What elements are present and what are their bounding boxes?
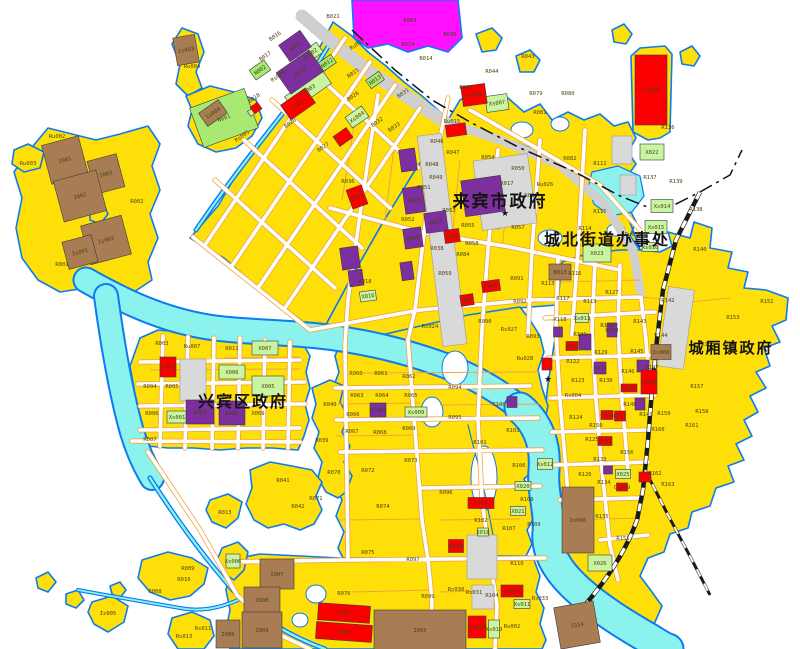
parcel-label-R066: R066 — [346, 412, 359, 418]
parcel-label-X025: X025 — [616, 472, 629, 478]
parcel-unlabeled — [399, 148, 418, 172]
parcel-label-R163: R163 — [661, 482, 674, 488]
parcel-label-R071: R071 — [309, 496, 322, 502]
parcel-label-Xs010: Xs010 — [486, 627, 503, 633]
parcel-label-R038: R038 — [430, 246, 443, 252]
pond — [551, 117, 569, 131]
parcel-label-R139: R139 — [669, 179, 682, 185]
parcel-label-Xs012: Xs012 — [537, 462, 554, 468]
parcel-label-Ru028: Ru028 — [517, 356, 534, 362]
parcel-label-R102: R102 — [474, 518, 487, 524]
parcel-label-R150: R150 — [589, 423, 602, 429]
parcel-label-R009: R009 — [181, 566, 194, 572]
parcel-label-B021: B021 — [326, 14, 339, 20]
parcel-label-R096: R096 — [439, 490, 452, 496]
parcel-label-X018: X018 — [476, 530, 489, 536]
parcel-label-R072: R072 — [361, 468, 374, 474]
parcel-unlabeled — [445, 123, 466, 138]
parcel-label-Xs006: Xs006 — [225, 559, 242, 565]
parcel-label-Cs001: Cs001 — [160, 365, 177, 371]
parcel-label-R049: R049 — [429, 175, 442, 181]
parcel-label-R101: R101 — [473, 440, 486, 446]
parcel-label-R057: R057 — [511, 225, 524, 231]
parcel-label-X005: X005 — [261, 384, 274, 390]
parcel-label-Xs009: Xs009 — [408, 410, 425, 416]
parcel-label-R109: R109 — [527, 522, 540, 528]
parcel-label-R081: R081 — [533, 110, 546, 116]
parcel-label-Xs013: Xs013 — [574, 316, 591, 322]
pond — [306, 585, 326, 603]
pond — [442, 351, 468, 385]
parcel-label-R008: R008 — [148, 589, 161, 595]
parcel-label-R114: R114 — [578, 226, 592, 232]
parcel-label-C004: C004 — [337, 629, 351, 636]
parcel-label-R117: R117 — [556, 296, 569, 302]
islet — [476, 28, 502, 52]
parcel-label-Xs015: Xs015 — [648, 225, 665, 231]
parcel-label-R134: R134 — [597, 480, 611, 486]
parcel-label-R062: R062 — [402, 374, 415, 380]
parcel-label-R065: R065 — [404, 393, 417, 399]
parcel-label-I008: I008 — [255, 598, 268, 604]
parcel-label-R160: R160 — [651, 427, 664, 433]
parcel-label-Rs033: Rs033 — [532, 596, 549, 602]
parcel-label-Ru003: Ru003 — [20, 161, 37, 167]
parcel-label-B014: B014 — [419, 56, 433, 62]
parcel-label-X023: X023 — [590, 251, 603, 257]
parcel-label-R075: R075 — [361, 550, 374, 556]
parcel-label-C018: C018 — [642, 380, 655, 386]
parcel-unlabeled — [612, 136, 632, 164]
parcel-label-R005: R005 — [165, 384, 178, 390]
parcel-label-R060: R060 — [349, 371, 362, 377]
parcel-label-R050: R050 — [511, 166, 524, 172]
parcel-label-Es001: Es001 — [370, 408, 387, 414]
parcel-label-R118: R118 — [553, 317, 566, 323]
parcel-label-C013: C013 — [598, 439, 611, 445]
parcel-label-R068: R068 — [373, 430, 386, 436]
parcel-label-R048: R048 — [425, 162, 438, 168]
parcel-label-R153: R153 — [726, 315, 739, 321]
parcel-label-C016: C016 — [622, 386, 635, 392]
parcel-label-R119: R119 — [583, 299, 596, 305]
government-seat-star-icon: ★ — [501, 209, 509, 219]
parcel-label-R110: R110 — [510, 561, 523, 567]
parcel-label-R011: R011 — [225, 346, 238, 352]
parcel-label-R041: R041 — [276, 478, 289, 484]
parcel-label-R133: R133 — [593, 457, 606, 463]
parcel-label-R123: R123 — [571, 378, 584, 384]
parcel-label-Is006: Is006 — [570, 518, 587, 524]
parcel-label-R091: R091 — [510, 276, 523, 282]
parcel-label-R094: R094 — [448, 385, 462, 391]
parcel-label-A002: A002 — [225, 411, 238, 417]
parcel-label-R073: R073 — [404, 458, 417, 464]
parcel-label-R106: R106 — [512, 463, 525, 469]
parcel-label-R104: R104 — [485, 593, 499, 599]
islet — [66, 590, 84, 608]
parcel-label-R151: R151 — [616, 536, 629, 542]
parcel-label-X006: X006 — [225, 370, 238, 376]
parcel-label-Cs008: Cs008 — [643, 88, 660, 94]
parcel-label-R046: R046 — [430, 139, 443, 145]
parcel-label-C009: C009 — [474, 501, 487, 507]
parcel-label-R082: R082 — [563, 156, 576, 162]
parcel-label-C012: C012 — [565, 344, 578, 350]
parcel-label-R144: R144 — [654, 333, 668, 339]
parcel-label-R107: R107 — [502, 526, 515, 532]
parcel-unlabeled — [400, 261, 414, 280]
parcel-label-R095: R095 — [448, 415, 461, 421]
parcel-label-R002: R002 — [130, 199, 143, 205]
parcel-label-R138: R138 — [689, 207, 702, 213]
parcel-label-R054: R054 — [481, 155, 495, 161]
islet — [36, 572, 56, 592]
parcel-label-R079: R079 — [529, 91, 542, 97]
parcel-label-Cs007: Cs007 — [469, 625, 486, 631]
parcel-label-C002: C002 — [337, 610, 351, 617]
parcel-label-R158: R158 — [695, 409, 708, 415]
parcel-label-R013: R013 — [218, 510, 231, 516]
parcel-label-R064: R064 — [375, 393, 389, 399]
parcel-label-R090: R090 — [478, 319, 491, 325]
parcel-label-R042: R042 — [291, 504, 304, 510]
parcel-label-R074: R074 — [376, 504, 390, 510]
parcel-label-R061: R061 — [374, 371, 387, 377]
parcel-label-Ru007: Ru007 — [184, 344, 201, 350]
parcel-unlabeled — [620, 175, 636, 195]
parcel-label-Cs009: Cs009 — [614, 485, 631, 491]
parcel-unlabeled — [604, 466, 613, 474]
parcel-label-B016: B016 — [268, 30, 282, 43]
parcel-unlabeled — [554, 327, 563, 337]
parcel-label-R146: R146 — [621, 369, 634, 375]
parcel-unlabeled — [467, 535, 497, 579]
parcel-label-R097: R097 — [406, 557, 419, 563]
parcel-label-X009: X009 — [251, 411, 264, 417]
parcel-label-B017: B017 — [258, 50, 272, 63]
parcel-label-R018: R018 — [358, 279, 371, 285]
parcel-label-R059: R059 — [438, 271, 451, 277]
parcel-label-R143: R143 — [633, 319, 646, 325]
parcel-label-Rs024: Rs024 — [422, 324, 439, 330]
parcel-label-C014: C014 — [600, 413, 614, 419]
parcel-label-Ru002: Ru002 — [49, 134, 66, 140]
parcel-label-R126: R126 — [578, 472, 591, 478]
parcel-label-R103: R103 — [506, 428, 519, 434]
parcel-label-R115: R115 — [593, 209, 606, 215]
parcel-label-R147: R147 — [645, 365, 658, 371]
parcel-label-R127: R127 — [605, 290, 618, 296]
parcel-label-X020: X020 — [516, 484, 529, 490]
parcel-label-R003: R003 — [155, 341, 168, 347]
parcel-label-R006: R006 — [145, 411, 158, 417]
parcel-label-Is005: Is005 — [100, 611, 117, 617]
parcel-label-R039: R039 — [315, 438, 328, 444]
government-label-3: 城厢镇政府 — [688, 339, 773, 357]
parcel-label-Rs030: Rs030 — [448, 587, 465, 593]
parcel-label-R149: R149 — [639, 412, 652, 418]
parcel-label-R055: R055 — [461, 223, 474, 229]
parcel-label-R152: R152 — [760, 299, 773, 305]
parcel-label-C017: C017 — [613, 414, 626, 420]
parcel-label-D024: D024 — [593, 366, 607, 372]
parcel-label-Rs031: Rs031 — [466, 590, 483, 596]
parcel-label-R159: R159 — [657, 411, 670, 417]
parcel-label-R130: R130 — [599, 378, 612, 384]
parcel-label-R070: R070 — [327, 470, 340, 476]
parcel-label-R125: R125 — [585, 437, 598, 443]
parcel-label-R010: R010 — [177, 577, 190, 583]
parcel-label-R093: R093 — [526, 334, 539, 340]
parcel-label-R058: R058 — [465, 241, 478, 247]
parcel-label-X007: X007 — [258, 346, 271, 352]
parcel-label-R162: R162 — [648, 471, 661, 477]
parcel-label-R092: R092 — [513, 299, 526, 305]
parcel-label-Xs011: Xs011 — [514, 602, 531, 608]
parcel-label-R001: R001 — [55, 262, 68, 268]
parcel-label-R157: R157 — [690, 384, 703, 390]
parcel-label-B024: B024 — [401, 42, 415, 48]
parcel-label-R148: R148 — [623, 402, 636, 408]
parcel-label-Is008: Is008 — [653, 350, 670, 356]
parcel-label-R043: R043 — [521, 54, 534, 60]
parcel-label-R122: R122 — [566, 359, 579, 365]
parcel-label-R007: R007 — [143, 437, 156, 443]
parcel-label-X021: X021 — [511, 509, 524, 515]
parcel-label-R051: R051 — [417, 185, 430, 191]
parcel-label-R140: R140 — [693, 247, 706, 253]
parcel-label-R145: R145 — [630, 349, 643, 355]
parcel-label-R044: R044 — [485, 69, 499, 75]
parcel-label-Rs011: Rs011 — [195, 626, 212, 632]
parcel-label-R112: R112 — [593, 161, 606, 167]
parcel-label-Ru015: Ru015 — [444, 119, 461, 125]
parcel-label-R142: R142 — [661, 298, 674, 304]
parcel-unlabeled — [340, 246, 361, 270]
parcel-label-R063: R063 — [350, 393, 363, 399]
parcel-label-R156: R156 — [620, 450, 633, 456]
government-label-0: 来宾市政府 — [452, 191, 548, 211]
government-label-1: 城北街道办事处 — [544, 230, 670, 249]
parcel-label-Rs004: Rs004 — [565, 393, 582, 399]
parcel-label-R047: R047 — [446, 150, 459, 156]
parcel-label-R045: R045 — [459, 85, 472, 91]
parcel-label-R036: R036 — [341, 179, 354, 185]
parcel-label-R135: R135 — [595, 514, 608, 520]
parcel-label-Ru004: Ru004 — [184, 64, 201, 70]
parcel-label-R137: R137 — [643, 175, 656, 181]
government-label-2: 兴宾区政府 — [198, 392, 288, 411]
parcel-label-R069: R069 — [402, 426, 415, 432]
parcel-label-R052: R052 — [401, 217, 414, 223]
parcel-label-X022: X022 — [645, 150, 658, 156]
parcel-label-C008: C008 — [449, 544, 462, 550]
parcel-label-R100: R100 — [492, 402, 505, 408]
government-seat-star-icon: ★ — [544, 375, 552, 385]
land-use-planning-map: N001N002N012N013Xs002Xs003Xs004Xs007X016… — [0, 0, 800, 649]
parcel-label-Xs014: Xs014 — [654, 204, 671, 210]
parcel-label-B013: B013 — [553, 270, 566, 276]
parcel-label-R040: R040 — [323, 402, 336, 408]
parcel-label-Xs001: Xs001 — [169, 415, 186, 421]
parcel-label-R128: R128 — [600, 323, 613, 329]
parcel-label-I006: I006 — [221, 632, 234, 638]
parcel-label-R017: R017 — [500, 181, 513, 187]
parcel-label-R116: R116 — [568, 271, 581, 277]
parcel-label-I007: I007 — [270, 572, 283, 578]
parcel-label-D010: D010 — [505, 589, 518, 595]
parcel-label-R161: R161 — [685, 423, 698, 429]
parcel-label-I005: I005 — [413, 628, 426, 634]
map-svg: N001N002N012N013Xs002Xs003Xs004Xs007X016… — [0, 0, 800, 649]
parcel-label-R067: R067 — [345, 429, 358, 435]
parcel-label-E003: E003 — [403, 18, 416, 24]
parcel-label-I009: I009 — [255, 628, 268, 634]
parcel-label-R099: R099 — [421, 594, 434, 600]
parcel-label-Rs002: Rs002 — [504, 624, 521, 630]
islet — [680, 46, 700, 66]
parcel-label-Rs013: Rs013 — [176, 634, 193, 640]
parcel-unlabeled — [507, 397, 517, 408]
parcel-unlabeled — [542, 358, 552, 370]
pond — [292, 613, 308, 627]
parcel-label-R084: R084 — [456, 252, 470, 258]
parcel-label-R113: R113 — [541, 281, 554, 287]
parcel-label-B030: B030 — [443, 32, 456, 38]
parcel-label-Ru026: Ru026 — [537, 182, 554, 188]
parcel-label-X026: X026 — [593, 561, 606, 567]
parcel-label-R124: R124 — [569, 415, 583, 421]
parcel-label-R004: R004 — [143, 384, 157, 390]
parcel-label-R121: R121 — [573, 332, 586, 338]
parcel-label-Rs027: Rs027 — [501, 327, 518, 333]
parcel-label-R136: R136 — [661, 125, 674, 131]
parcel-label-R076: R076 — [337, 591, 350, 597]
parcel-label-R129: R129 — [594, 350, 607, 356]
islet — [612, 24, 632, 44]
parcel-label-R080: R080 — [561, 91, 574, 97]
parcel-label-R108: R108 — [520, 497, 533, 503]
